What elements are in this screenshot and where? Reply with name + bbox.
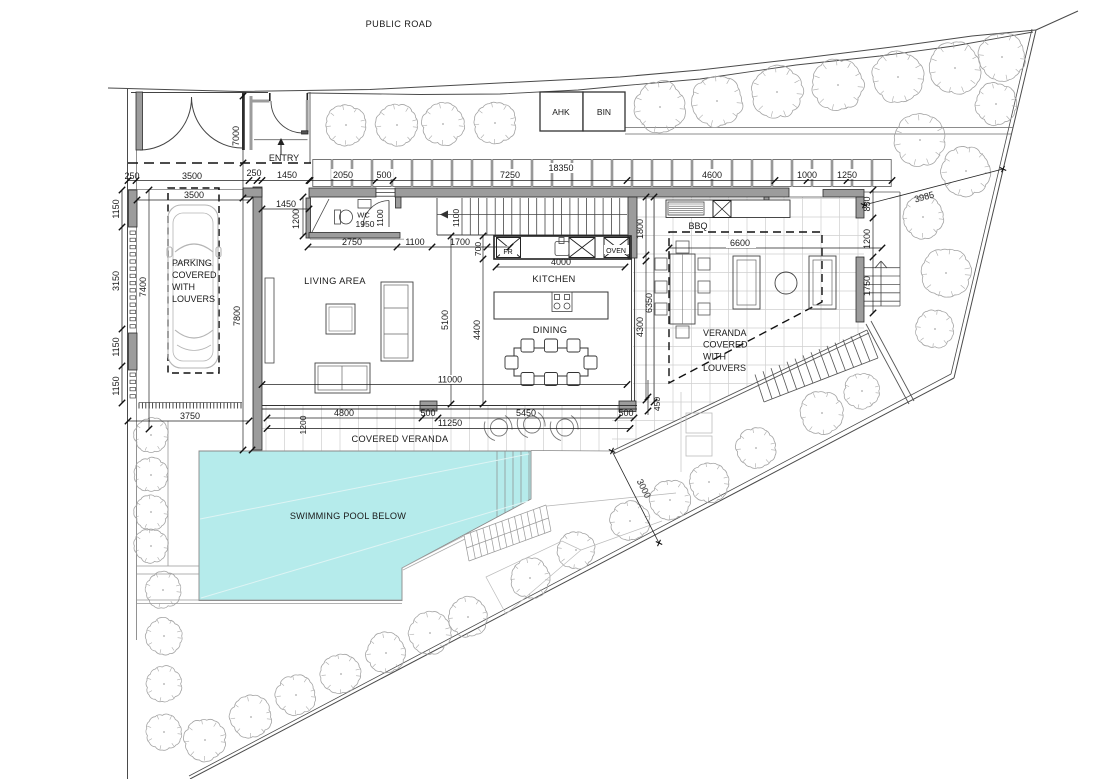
svg-text:3500: 3500 <box>182 171 202 181</box>
svg-text:7400: 7400 <box>138 277 148 297</box>
svg-text:500: 500 <box>420 408 435 418</box>
svg-text:7000: 7000 <box>231 126 241 146</box>
svg-text:700: 700 <box>473 242 483 256</box>
svg-text:AHK: AHK <box>552 107 570 117</box>
svg-text:4600: 4600 <box>702 170 722 180</box>
svg-text:1800: 1800 <box>635 219 645 239</box>
svg-text:1950: 1950 <box>356 219 375 229</box>
svg-text:1250: 1250 <box>837 170 857 180</box>
svg-text:PARKING: PARKING <box>172 258 212 268</box>
svg-text:1700: 1700 <box>450 237 470 247</box>
svg-text:FR: FR <box>503 249 512 256</box>
svg-text:7250: 7250 <box>500 170 520 180</box>
svg-text:OVEN: OVEN <box>606 248 626 255</box>
svg-text:1450: 1450 <box>276 199 296 209</box>
svg-text:3500: 3500 <box>184 190 204 200</box>
svg-text:1150: 1150 <box>111 337 121 356</box>
svg-text:PUBLIC ROAD: PUBLIC ROAD <box>366 19 433 29</box>
svg-text:WITH: WITH <box>172 282 195 292</box>
svg-text:6350: 6350 <box>644 293 654 313</box>
svg-text:2750: 2750 <box>342 237 362 247</box>
svg-text:ENTRY: ENTRY <box>269 153 299 163</box>
svg-text:1100: 1100 <box>405 237 424 247</box>
svg-text:1200: 1200 <box>298 415 308 434</box>
svg-text:LOUVERS: LOUVERS <box>703 363 746 373</box>
svg-text:500: 500 <box>376 170 391 180</box>
svg-text:LIVING AREA: LIVING AREA <box>304 275 366 286</box>
svg-text:1200: 1200 <box>291 209 301 229</box>
svg-text:1150: 1150 <box>111 199 121 218</box>
svg-text:1100: 1100 <box>451 209 461 228</box>
svg-text:11250: 11250 <box>438 418 462 428</box>
svg-text:VERANDA: VERANDA <box>703 328 747 338</box>
svg-text:COVERED: COVERED <box>172 270 217 280</box>
svg-text:COVERED VERANDA: COVERED VERANDA <box>352 434 449 444</box>
svg-text:5450: 5450 <box>516 408 536 418</box>
svg-text:KITCHEN: KITCHEN <box>532 273 575 284</box>
svg-text:500: 500 <box>618 408 633 418</box>
svg-text:4000: 4000 <box>551 257 571 267</box>
svg-text:LOUVERS: LOUVERS <box>172 294 215 304</box>
svg-text:1450: 1450 <box>277 170 297 180</box>
svg-text:BIN: BIN <box>597 107 611 117</box>
svg-text:450: 450 <box>652 397 662 411</box>
svg-text:4300: 4300 <box>635 317 645 337</box>
svg-text:COVERED: COVERED <box>703 340 748 350</box>
svg-text:6600: 6600 <box>730 238 750 248</box>
svg-text:5100: 5100 <box>440 310 450 330</box>
svg-text:7800: 7800 <box>232 306 242 326</box>
svg-text:1100: 1100 <box>376 209 385 227</box>
svg-text:1750: 1750 <box>862 276 872 296</box>
svg-text:250: 250 <box>246 168 261 178</box>
svg-text:1000: 1000 <box>797 170 817 180</box>
svg-text:4400: 4400 <box>472 320 482 340</box>
svg-text:4800: 4800 <box>334 408 354 418</box>
svg-text:1200: 1200 <box>862 229 872 249</box>
svg-text:3750: 3750 <box>180 411 200 421</box>
svg-text:3150: 3150 <box>111 271 121 291</box>
svg-text:11000: 11000 <box>438 375 462 385</box>
svg-text:250: 250 <box>124 171 139 181</box>
svg-text:DINING: DINING <box>533 324 568 335</box>
svg-text:18350: 18350 <box>548 163 573 173</box>
svg-text:BBQ: BBQ <box>688 221 707 231</box>
svg-text:SWIMMING POOL BELOW: SWIMMING POOL BELOW <box>290 511 406 521</box>
svg-text:2050: 2050 <box>333 170 353 180</box>
svg-text:WITH: WITH <box>703 351 726 361</box>
svg-text:1150: 1150 <box>111 376 121 395</box>
